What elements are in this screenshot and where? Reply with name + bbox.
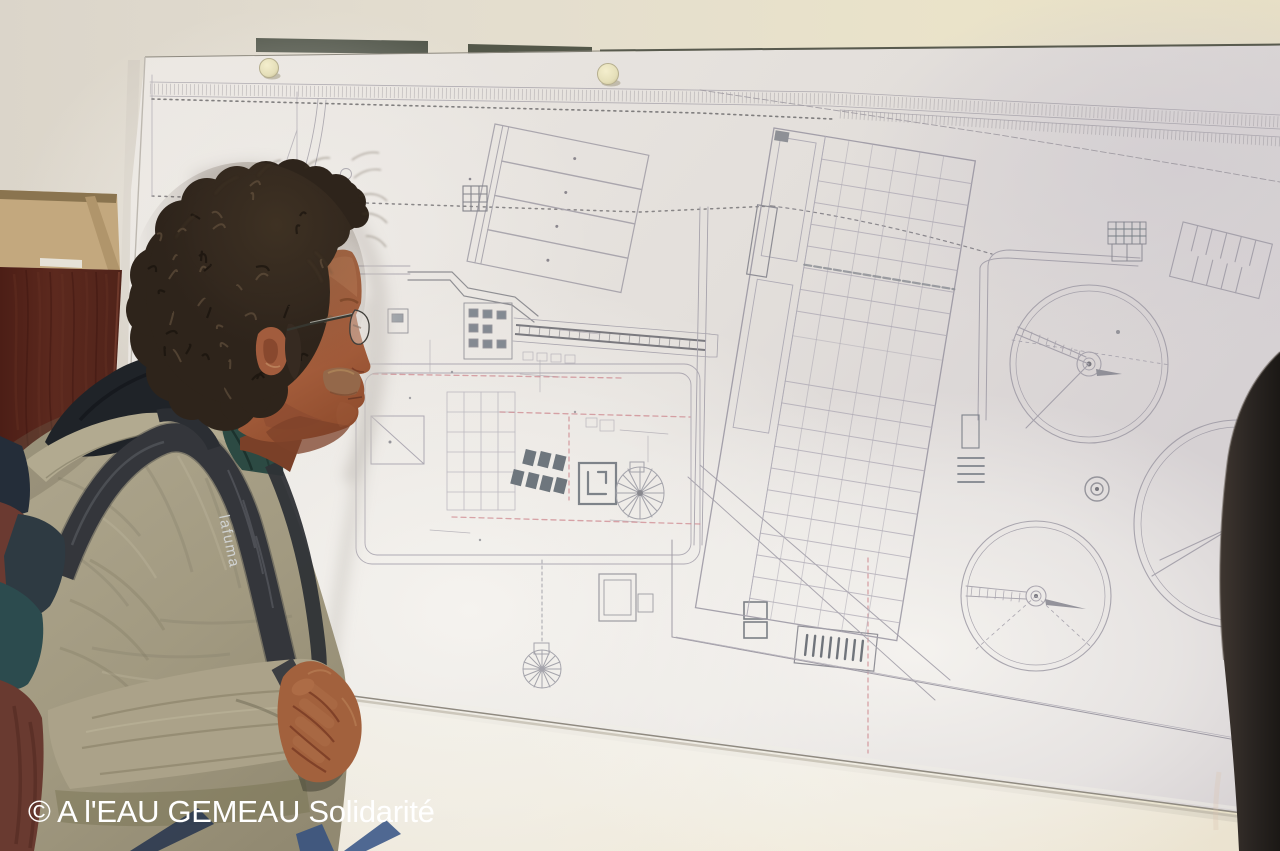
svg-text:© A l'EAU GEMEAU Solidarité: © A l'EAU GEMEAU Solidarité [28, 794, 435, 829]
